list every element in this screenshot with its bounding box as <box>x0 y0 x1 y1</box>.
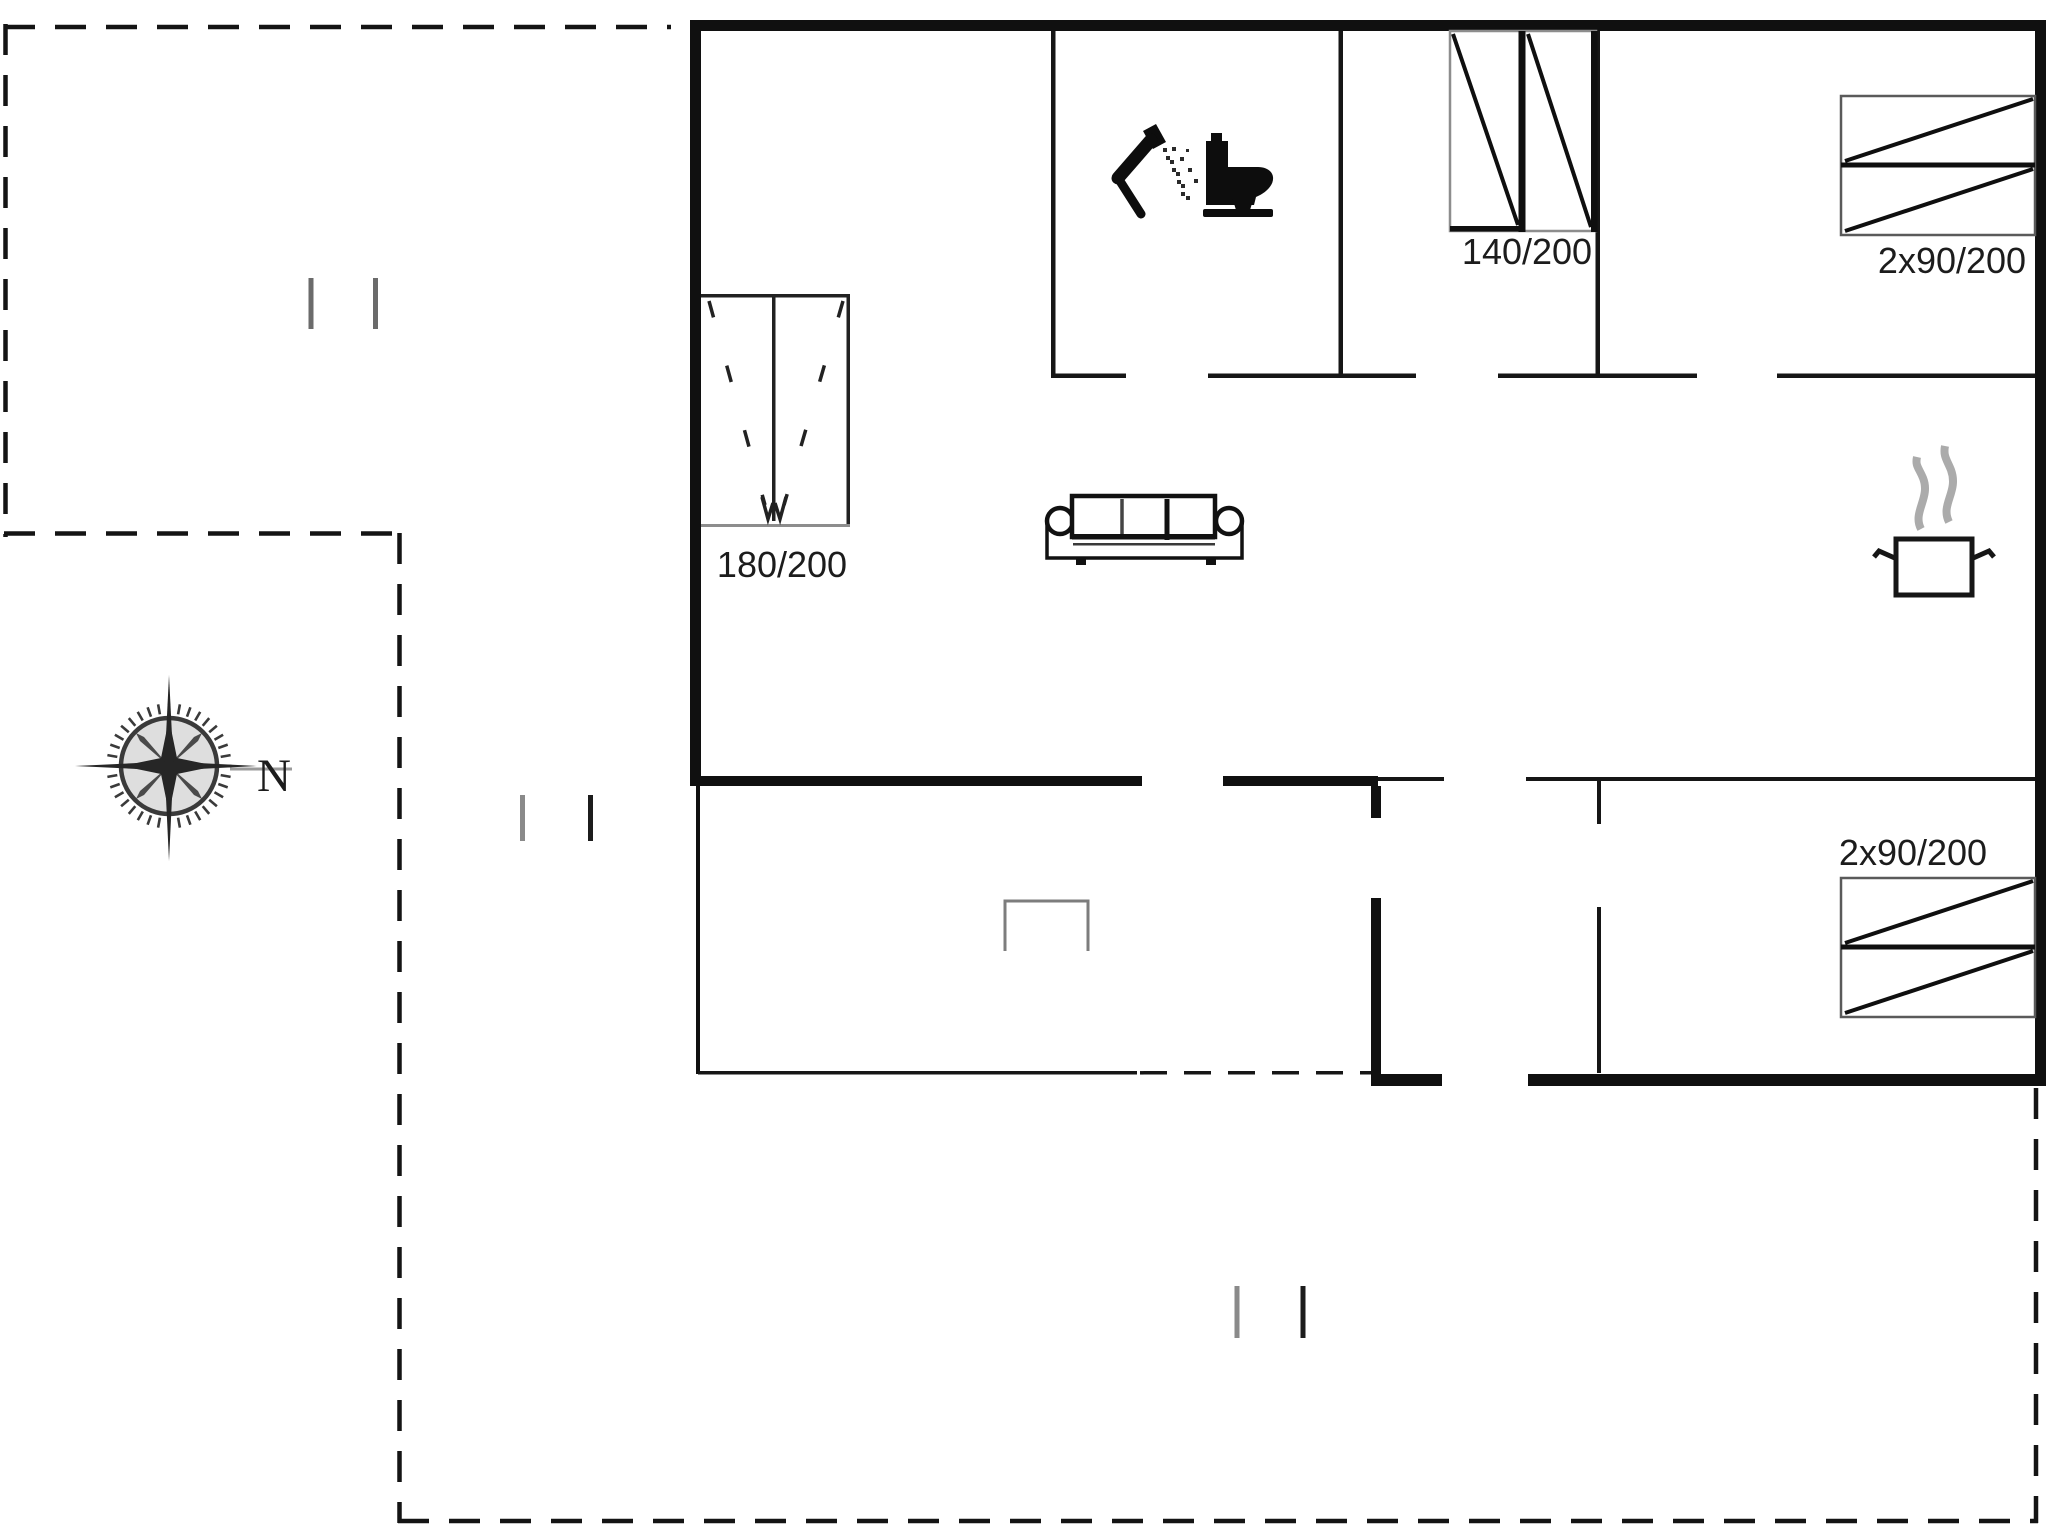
svg-text:140/200: 140/200 <box>1462 231 1592 272</box>
svg-text:2x90/200: 2x90/200 <box>1839 832 1987 873</box>
svg-text:2x90/200: 2x90/200 <box>1878 240 2026 281</box>
svg-text:180/200: 180/200 <box>717 544 847 585</box>
svg-text:N: N <box>257 750 291 802</box>
